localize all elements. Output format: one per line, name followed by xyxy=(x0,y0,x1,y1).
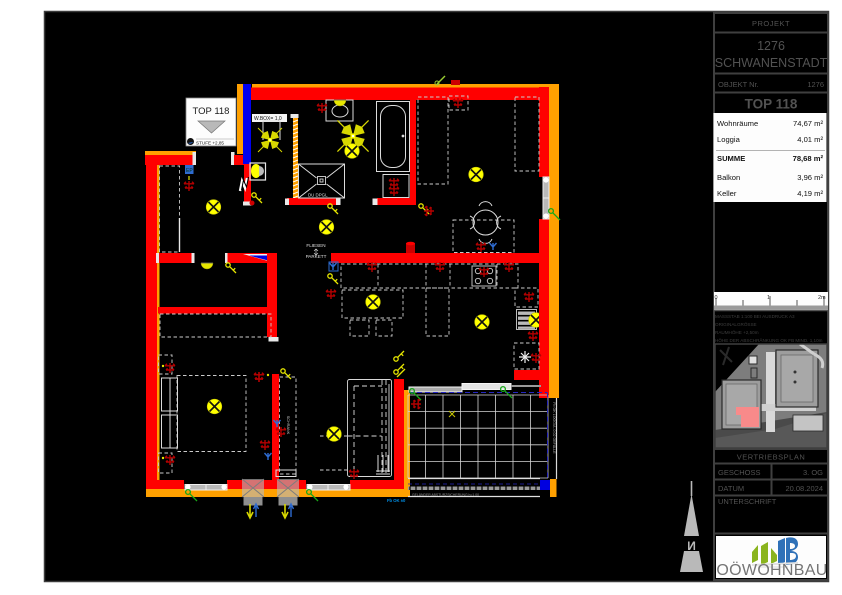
svg-text:Fb OK ±0: Fb OK ±0 xyxy=(387,498,406,503)
svg-text:TOP 118: TOP 118 xyxy=(193,106,230,117)
svg-text:SCHRANK: SCHRANK xyxy=(286,416,290,435)
svg-text:1276: 1276 xyxy=(757,39,785,53)
svg-text:74,67 m²: 74,67 m² xyxy=(793,119,823,128)
svg-text:SUMME: SUMME xyxy=(717,154,745,163)
svg-text:OBJEKT Nr.: OBJEKT Nr. xyxy=(718,80,759,89)
svg-text:STUFE +2,85: STUFE +2,85 xyxy=(196,141,224,146)
svg-text:Loggia: Loggia xyxy=(717,135,741,144)
svg-text:Wohnräume: Wohnräume xyxy=(717,119,758,128)
svg-text:4,01 m²: 4,01 m² xyxy=(797,135,823,144)
svg-text:UNTERSCHRIFT: UNTERSCHRIFT xyxy=(718,497,777,506)
svg-text:N: N xyxy=(687,539,696,553)
svg-text:GELÄNDER ABSTURZSICHERUNG h=1,: GELÄNDER ABSTURZSICHERUNG h=1,00 xyxy=(412,493,479,497)
svg-text:3,96 m²: 3,96 m² xyxy=(797,173,823,182)
svg-text:Balkon: Balkon xyxy=(717,173,740,182)
svg-text:HÖHE DER ABSCHRÄNKUNG OK FB MI: HÖHE DER ABSCHRÄNKUNG OK FB MIND. 1,10m xyxy=(715,337,823,343)
svg-text:ORIGINALGRÖSSE: ORIGINALGRÖSSE xyxy=(715,321,757,327)
svg-text:OÖWOHNBAU: OÖWOHNBAU xyxy=(716,561,827,579)
svg-text:Fb OK LOGGIA -0,02 GEFÄLLE: Fb OK LOGGIA -0,02 GEFÄLLE xyxy=(552,402,556,454)
svg-text:4,19 m²: 4,19 m² xyxy=(797,189,823,198)
svg-text:EP: EP xyxy=(186,168,193,174)
svg-text:1276: 1276 xyxy=(807,80,824,89)
svg-text:TOP 118: TOP 118 xyxy=(745,97,798,112)
svg-text:VERTRIEBSPLAN: VERTRIEBSPLAN xyxy=(737,453,805,462)
svg-text:MASSSTAB 1:100 BEI AUSDR: MASSSTAB 1:100 BEI AUSDRUCK A3 xyxy=(715,314,795,319)
svg-text:DATUM: DATUM xyxy=(718,484,744,493)
svg-text:DU DPGL: DU DPGL xyxy=(308,193,328,198)
svg-text:GESCHOSS: GESCHOSS xyxy=(718,468,761,477)
svg-text:2m: 2m xyxy=(818,295,826,301)
svg-text:RAUMHÖHE +2,50m: RAUMHÖHE +2,50m xyxy=(715,329,759,335)
svg-text:20.08.2024: 20.08.2024 xyxy=(785,484,823,493)
svg-text:78,68 m²: 78,68 m² xyxy=(793,154,824,163)
svg-text:PROJEKT: PROJEKT xyxy=(752,19,790,28)
svg-text:3. OG: 3. OG xyxy=(803,468,823,477)
svg-text:FLIESEN: FLIESEN xyxy=(306,243,325,248)
svg-text:SCHWANENSTADT: SCHWANENSTADT xyxy=(715,56,828,70)
svg-text:Keller: Keller xyxy=(717,189,737,198)
